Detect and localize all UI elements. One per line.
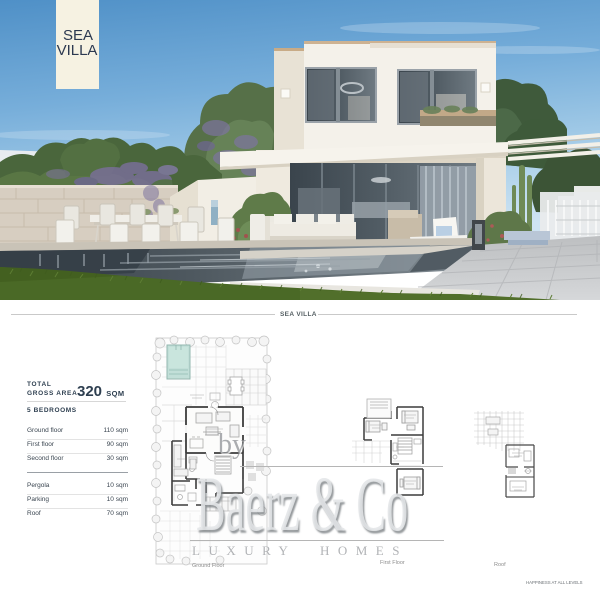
svg-text:Ground Floor: Ground Floor — [192, 563, 225, 569]
svg-text:VILLA: VILLA — [57, 42, 98, 59]
svg-text:Roof: Roof — [494, 562, 506, 568]
svg-text:First Floor: First Floor — [380, 560, 405, 566]
